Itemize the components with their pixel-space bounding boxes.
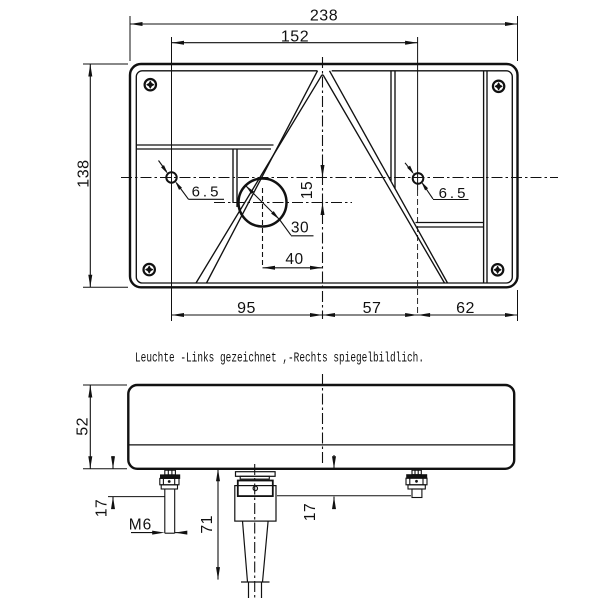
- svg-text:6.5: 6.5: [192, 184, 222, 201]
- svg-text:52: 52: [75, 417, 92, 436]
- svg-text:138: 138: [76, 159, 93, 187]
- svg-text:M6: M6: [129, 516, 153, 533]
- svg-text:95: 95: [237, 300, 256, 317]
- svg-text:238: 238: [310, 8, 338, 25]
- svg-text:40: 40: [285, 251, 303, 268]
- svg-text:30: 30: [291, 220, 309, 237]
- svg-text:152: 152: [281, 29, 309, 46]
- svg-text:71: 71: [199, 515, 216, 534]
- svg-text:15: 15: [299, 181, 316, 199]
- svg-text:62: 62: [456, 300, 475, 317]
- svg-text:17: 17: [94, 499, 111, 517]
- svg-text:57: 57: [363, 300, 382, 317]
- svg-text:Leuchte -Links gezeichnet ,-Re: Leuchte -Links gezeichnet ,-Rechts spieg…: [135, 351, 424, 367]
- svg-text:17: 17: [302, 503, 319, 521]
- svg-text:6.5: 6.5: [439, 185, 469, 202]
